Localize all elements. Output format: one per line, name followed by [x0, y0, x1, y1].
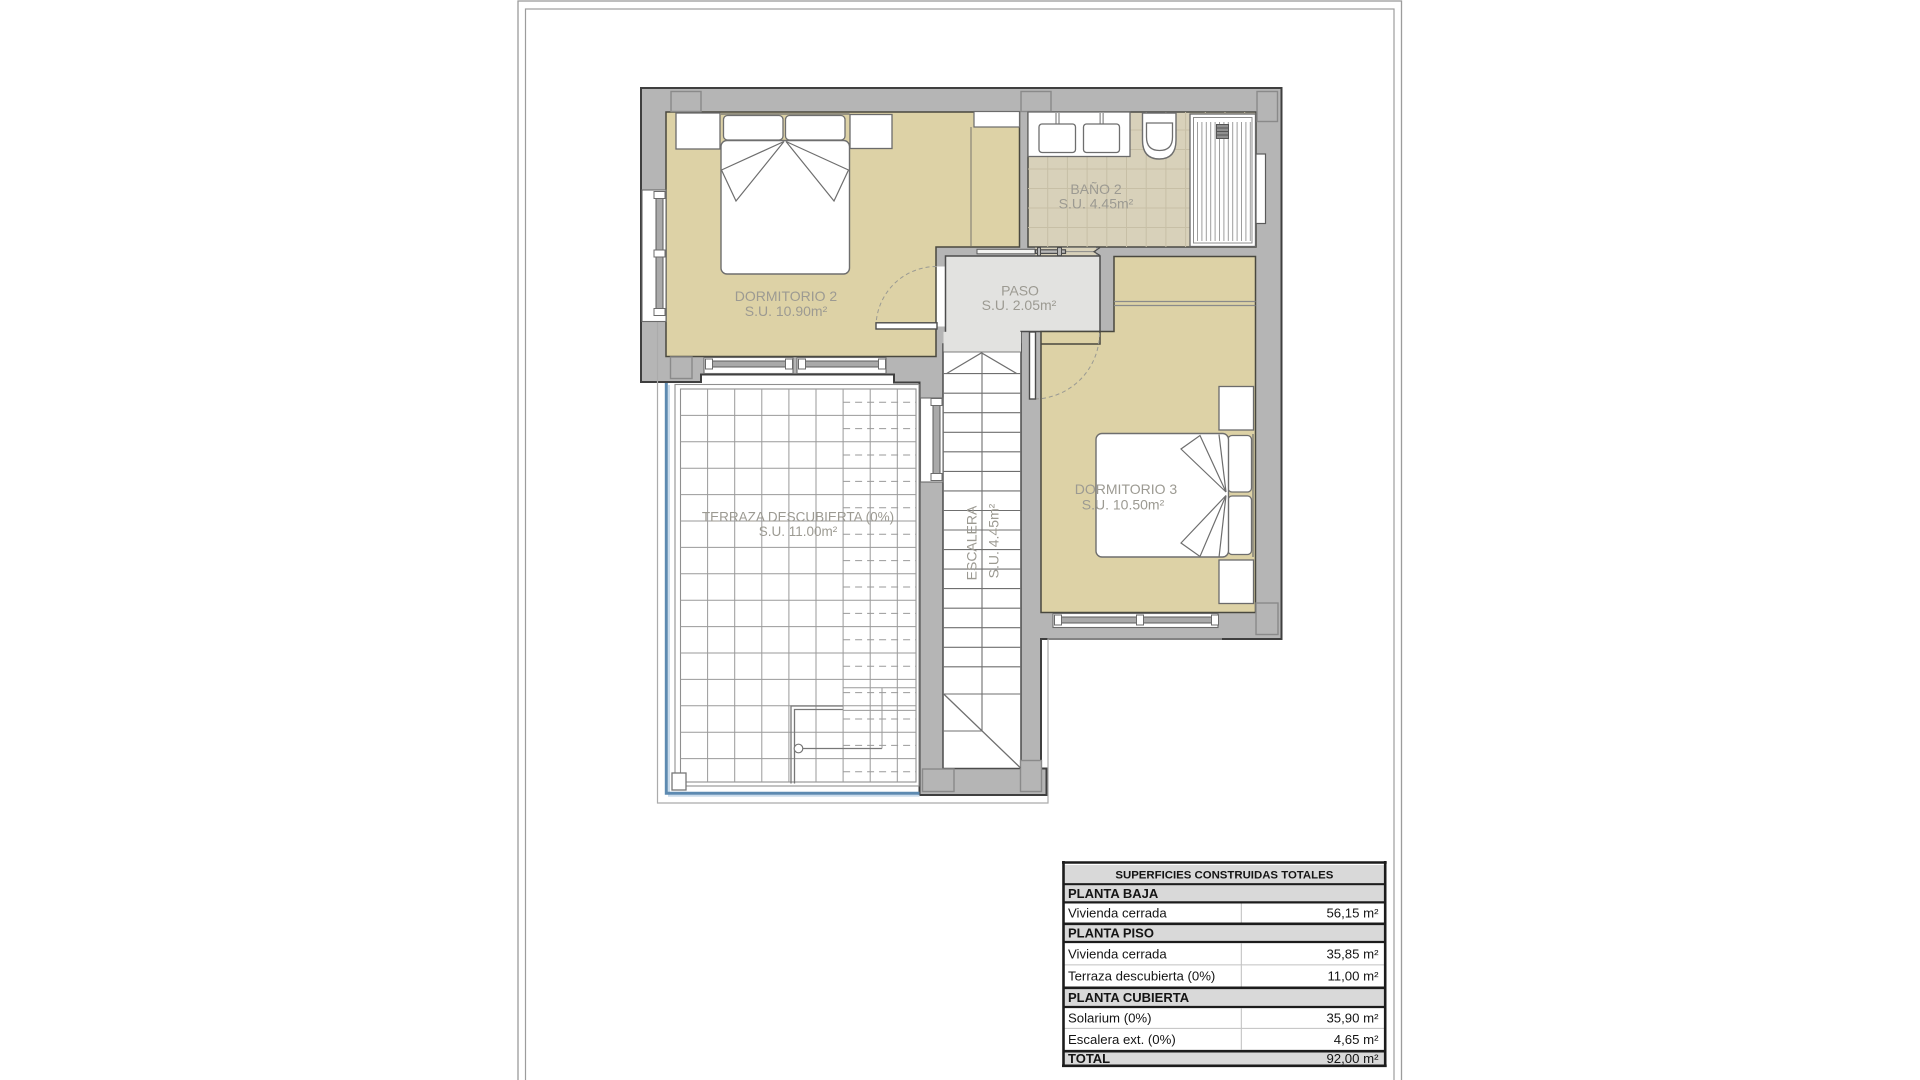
- svg-text:TOTAL: TOTAL: [1068, 1051, 1110, 1066]
- svg-text:S.U. 10.50m²: S.U. 10.50m²: [1082, 497, 1165, 513]
- svg-text:DORMITORIO 3: DORMITORIO 3: [1075, 481, 1178, 497]
- svg-text:TERRAZA DESCUBIERTA (0%): TERRAZA DESCUBIERTA (0%): [702, 510, 894, 525]
- svg-text:11,00 m²: 11,00 m²: [1327, 969, 1379, 984]
- svg-text:Vivienda cerrada: Vivienda cerrada: [1068, 906, 1167, 921]
- svg-text:56,15 m²: 56,15 m²: [1326, 906, 1379, 921]
- svg-text:PLANTA BAJA: PLANTA BAJA: [1068, 886, 1159, 901]
- svg-text:PLANTA PISO: PLANTA PISO: [1068, 926, 1154, 941]
- svg-text:DORMITORIO 2: DORMITORIO 2: [735, 288, 838, 304]
- svg-text:ESCALERA: ESCALERA: [964, 505, 980, 580]
- svg-text:92,00 m²: 92,00 m²: [1326, 1051, 1379, 1066]
- svg-text:SUPERFICIES CONSTRUIDAS TOTALE: SUPERFICIES CONSTRUIDAS TOTALES: [1115, 870, 1333, 882]
- svg-text:35,90 m²: 35,90 m²: [1326, 1011, 1379, 1026]
- svg-text:S.U. 10.90m²: S.U. 10.90m²: [745, 303, 828, 319]
- svg-text:4,65 m²: 4,65 m²: [1334, 1032, 1379, 1047]
- svg-text:Terraza descubierta (0%): Terraza descubierta (0%): [1068, 969, 1215, 984]
- svg-text:S.U. 4.45m²: S.U. 4.45m²: [986, 503, 1002, 578]
- svg-text:S.U. 11.00m²: S.U. 11.00m²: [759, 524, 838, 539]
- svg-text:S.U. 4.45m²: S.U. 4.45m²: [1059, 196, 1134, 212]
- svg-text:S.U. 2.05m²: S.U. 2.05m²: [982, 297, 1057, 313]
- svg-text:Escalera ext. (0%): Escalera ext. (0%): [1068, 1032, 1176, 1047]
- svg-text:Solarium (0%): Solarium (0%): [1068, 1011, 1152, 1026]
- svg-text:35,85 m²: 35,85 m²: [1326, 946, 1379, 961]
- svg-text:Vivienda cerrada: Vivienda cerrada: [1068, 946, 1167, 961]
- svg-text:PLANTA CUBIERTA: PLANTA CUBIERTA: [1068, 990, 1190, 1005]
